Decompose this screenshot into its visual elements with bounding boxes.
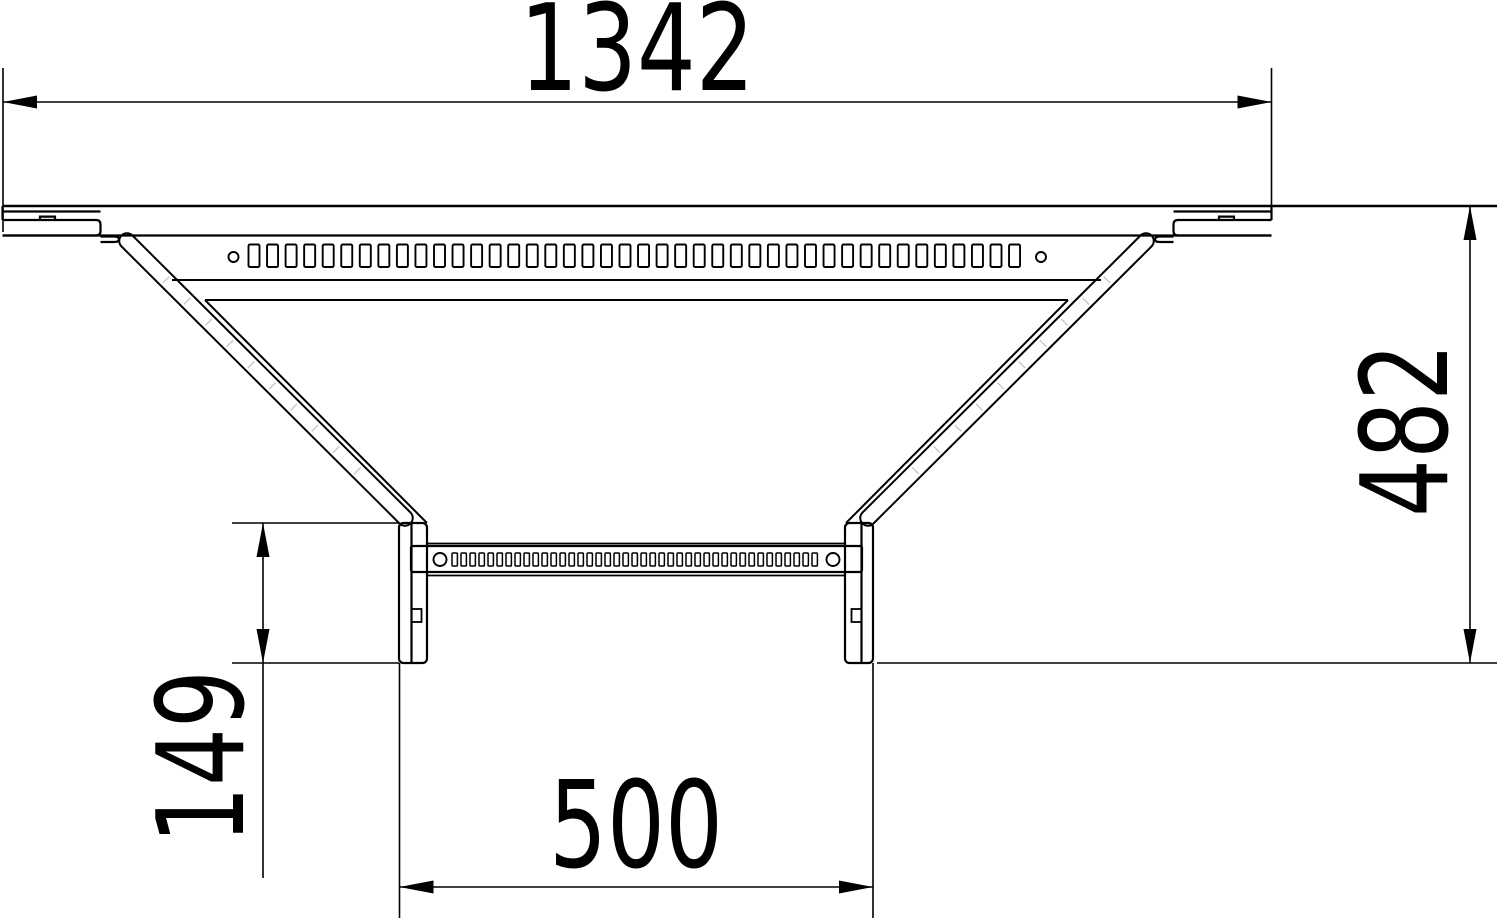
arrowhead-down <box>257 629 270 663</box>
perforation-slot <box>694 245 705 268</box>
arrowhead-up <box>1464 206 1477 240</box>
perforation-slot <box>323 245 334 268</box>
perforation-slot <box>712 245 723 268</box>
perforation-slot <box>641 553 646 566</box>
left-connector-flange <box>3 217 101 236</box>
diagonal-side-rails <box>127 241 1146 518</box>
perforation-slot <box>378 245 389 268</box>
branch-right-rail <box>845 523 873 663</box>
perforation-slot <box>434 245 445 268</box>
perforation-slot <box>601 245 612 268</box>
perforation-slot <box>490 245 501 268</box>
perforation-slot <box>479 553 484 566</box>
dim-overall-width: 1342 <box>3 0 1272 232</box>
dim-branch-width: 500 <box>400 663 874 918</box>
arrowhead-right <box>839 881 873 894</box>
perforation-slot <box>861 245 872 268</box>
perforation-slot <box>767 553 772 566</box>
branch-right-rail-notch <box>852 609 862 622</box>
drawing-canvas: 1342 482 149 500 <box>0 0 1500 918</box>
arrowhead-down <box>1464 629 1477 663</box>
rung-end-hole-right <box>827 553 840 566</box>
perforation-slot <box>533 553 538 566</box>
perforation-slot <box>596 553 601 566</box>
perforation-slot <box>415 245 426 268</box>
dimension-label-branch-inset: 149 <box>133 670 272 844</box>
perforation-slot <box>497 553 502 566</box>
perforation-slot <box>623 553 628 566</box>
perforation-slot <box>587 553 592 566</box>
perforation-slot <box>471 245 482 268</box>
arrowhead-right <box>1238 96 1272 109</box>
main-perforation-strip <box>229 245 1047 268</box>
perforation-slot <box>545 245 556 268</box>
perforation-slot <box>304 245 315 268</box>
right-connector-flange <box>1174 217 1272 236</box>
perforation-slot <box>722 553 727 566</box>
perforation-slot <box>879 245 890 268</box>
perforation-slot <box>824 245 835 268</box>
perforation-slot <box>453 245 464 268</box>
perforation-slot <box>605 553 610 566</box>
perforation-slot <box>659 553 664 566</box>
strip-slots <box>249 245 1021 268</box>
perforation-slot <box>695 553 700 566</box>
perforation-slot <box>461 553 466 566</box>
strip-end-hole-right <box>1036 252 1046 262</box>
arrowhead-left <box>400 881 434 894</box>
perforation-slot <box>582 245 593 268</box>
perforation-slot <box>286 245 297 268</box>
perforation-slot <box>803 553 808 566</box>
perforation-slot <box>668 553 673 566</box>
dim-branch-inset: 149 <box>133 523 399 878</box>
rung-end-hole-left <box>434 553 447 566</box>
perforation-slot <box>542 553 547 566</box>
perforation-slot <box>731 245 742 268</box>
perforation-slot <box>524 553 529 566</box>
perforation-slot <box>508 245 519 268</box>
branch-left-rail-notch <box>412 609 422 622</box>
perforation-slot <box>786 245 797 268</box>
branch-stub <box>399 523 873 663</box>
perforation-slot <box>488 553 493 566</box>
perforation-slot <box>452 553 457 566</box>
perforation-slot <box>731 553 736 566</box>
main-run-rail <box>3 206 1498 242</box>
perforation-slot <box>704 553 709 566</box>
perforation-slot <box>935 245 946 268</box>
perforation-slot <box>776 553 781 566</box>
perforation-slot <box>749 245 760 268</box>
perforation-slot <box>506 553 511 566</box>
perforation-slot <box>620 245 631 268</box>
perforation-slot <box>972 245 983 268</box>
perforation-slot <box>768 245 779 268</box>
perforation-slot <box>842 245 853 268</box>
branch-left-rail <box>399 523 427 663</box>
perforation-slot <box>677 553 682 566</box>
perforation-slot <box>794 553 799 566</box>
perforation-slot <box>675 245 686 268</box>
perforation-slot <box>638 245 649 268</box>
transition-edges <box>172 280 1101 523</box>
perforation-slot <box>397 245 408 268</box>
perforation-slot <box>564 245 575 268</box>
perforation-slot <box>360 245 371 268</box>
perforation-slot <box>758 553 763 566</box>
perforation-slot <box>578 553 583 566</box>
perforation-slot <box>650 553 655 566</box>
perforation-slot <box>686 553 691 566</box>
rail-hatch-ticks <box>163 277 1111 474</box>
perforation-slot <box>657 245 668 268</box>
dimension-label-overall-depth: 482 <box>1337 343 1476 517</box>
perforation-slot <box>916 245 927 268</box>
perforation-slot <box>560 553 565 566</box>
dimension-label-overall-width: 1342 <box>520 0 755 119</box>
perforation-slot <box>1009 245 1020 268</box>
perforation-slot <box>749 553 754 566</box>
perforation-slot <box>740 553 745 566</box>
perforation-slot <box>527 245 538 268</box>
perforation-slot <box>805 245 816 268</box>
perforation-slot <box>341 245 352 268</box>
perforation-slot <box>632 553 637 566</box>
perforation-slot <box>551 553 556 566</box>
strip-end-hole-left <box>229 252 239 262</box>
rung-slots <box>452 553 817 566</box>
perforation-slot <box>249 245 260 268</box>
perforation-slot <box>812 553 817 566</box>
perforation-slot <box>515 553 520 566</box>
dimension-label-branch-width: 500 <box>549 757 723 896</box>
dim-overall-depth: 482 <box>877 206 1497 663</box>
perforation-slot <box>785 553 790 566</box>
arrowhead-up <box>257 523 270 557</box>
perforation-slot <box>470 553 475 566</box>
technical-drawing: 1342 482 149 500 <box>0 0 1500 918</box>
perforation-slot <box>898 245 909 268</box>
perforation-slot <box>569 553 574 566</box>
perforation-slot <box>614 553 619 566</box>
perforation-slot <box>953 245 964 268</box>
perforation-slot <box>713 553 718 566</box>
perforation-slot <box>991 245 1002 268</box>
arrowhead-left <box>3 96 37 109</box>
perforation-slot <box>267 245 278 268</box>
